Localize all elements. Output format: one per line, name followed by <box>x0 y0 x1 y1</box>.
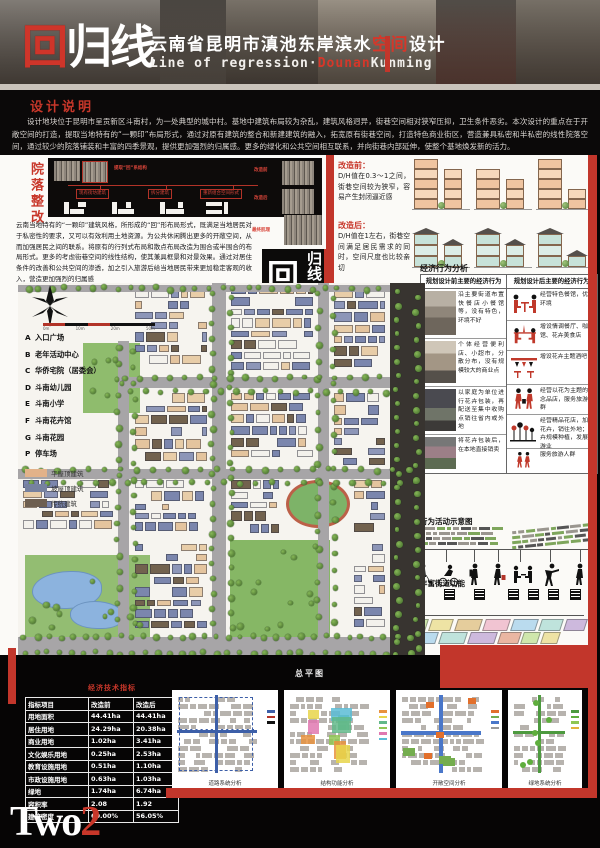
mini-building <box>290 704 299 709</box>
indicator-cell: 教育设施用地 <box>26 760 89 773</box>
ground-line <box>474 267 532 268</box>
plan-building <box>201 345 207 352</box>
tree <box>416 603 421 608</box>
mini-building <box>450 739 454 744</box>
indicator-cell: 用地面积 <box>26 710 89 723</box>
mini-building <box>462 746 468 751</box>
tree <box>227 460 233 466</box>
indicator-cell: 1.92 <box>134 798 179 811</box>
plan-building <box>334 405 346 415</box>
diagram-label-after: 改造后 <box>254 196 268 201</box>
plan-building <box>135 439 150 449</box>
tree <box>227 310 233 316</box>
plan-building <box>272 450 281 457</box>
map-fragment <box>426 532 431 535</box>
tree <box>208 411 215 418</box>
diagram-label-extract: 提取“回”系结构 <box>114 166 147 171</box>
pitched-roof <box>566 250 588 256</box>
plan-building <box>155 312 167 319</box>
economy-after-row: 经营特色餐馆，优化环境 <box>507 289 596 321</box>
tree <box>414 491 420 497</box>
economy-row-text: 沿主要街道布置快餐店小餐馆等，没有特色，环境不好 <box>458 291 504 336</box>
plan-building <box>354 312 368 322</box>
legend-item: E斗南小学 <box>25 399 135 416</box>
economy-row-text: 经营特色餐馆，优化环境 <box>540 291 594 318</box>
street-function-block <box>438 632 467 644</box>
plan-building <box>231 450 249 457</box>
plan-building <box>184 564 192 574</box>
indicator-cell: 44.41ha <box>89 710 134 723</box>
logo-guixian-glyph: 归线 <box>66 20 154 74</box>
tree <box>345 651 351 655</box>
tree <box>330 364 335 369</box>
plan-building <box>371 502 379 510</box>
tree <box>394 513 401 520</box>
diagram-label-split: 拆分建筑 <box>148 189 172 199</box>
tree <box>332 330 338 336</box>
map-fragment <box>565 529 578 533</box>
plan-building <box>372 325 385 332</box>
indicator-cell: 56.05% <box>134 810 179 823</box>
tree <box>132 557 137 562</box>
behavior-title: 行为活动示意图 <box>420 516 473 527</box>
right-red-border <box>588 155 597 798</box>
tree <box>323 650 328 655</box>
tree <box>296 649 303 655</box>
map-fragment <box>545 532 550 536</box>
mini-building <box>455 711 466 716</box>
plan-building <box>376 438 385 445</box>
indicator-cell: 24.29ha <box>89 723 134 736</box>
map-fragment <box>512 540 521 544</box>
diagram-label-existing: 现有街坊建筑 <box>76 189 109 199</box>
mini-legend-swatch <box>491 727 499 730</box>
team-logo-text: Two <box>10 799 80 845</box>
tree <box>310 466 316 472</box>
plan-building <box>69 520 77 529</box>
economy-row-text: 以家庭为单位进行花卉包装，再配送至集中收购点销往省内或外地 <box>458 389 504 432</box>
street-function-block <box>429 619 455 631</box>
map-fragment <box>437 527 446 530</box>
tree <box>210 381 217 388</box>
tree <box>331 296 336 301</box>
tree <box>416 323 422 329</box>
indicator-cell: 文化娱乐用地 <box>26 748 89 761</box>
function-zone-overlay <box>332 717 351 733</box>
tree <box>212 376 217 381</box>
plan-building <box>179 452 194 462</box>
tree <box>301 480 307 486</box>
tree <box>132 589 137 594</box>
plan-building <box>368 336 377 344</box>
tree <box>415 631 421 637</box>
mini-building <box>558 711 566 716</box>
street-function-title: 丰富街道功能 <box>420 578 465 589</box>
mini-building <box>402 697 408 702</box>
tree <box>143 650 148 655</box>
mini-building <box>418 697 426 702</box>
mini-building <box>290 732 295 737</box>
plan-building <box>251 331 271 338</box>
plan-building <box>272 414 285 423</box>
map-fragment <box>518 530 525 534</box>
tree <box>115 617 120 622</box>
plan-building <box>135 332 144 342</box>
title-accent: 空间 <box>372 35 409 55</box>
plan-building <box>287 414 294 423</box>
map-fragment <box>544 542 556 546</box>
plan-building <box>171 345 179 352</box>
mini-building <box>301 704 305 709</box>
open-space-overlay <box>424 753 432 759</box>
tree <box>114 537 119 542</box>
scale-label: 20m <box>111 326 120 331</box>
plan-building <box>372 544 384 551</box>
title-red-tick <box>385 36 390 72</box>
tree <box>53 604 60 611</box>
plan-building <box>286 309 303 315</box>
mini-legend-swatch <box>491 710 499 713</box>
map-fragment <box>478 542 489 545</box>
plan-building <box>186 439 201 449</box>
design-notes-body: 设计地块位于昆明市呈贡新区斗南村，为一处典型的城中村。基地中建筑布局较为杂乱，建… <box>12 116 588 154</box>
plan-building <box>189 522 198 530</box>
mini-building <box>556 760 564 765</box>
tree <box>347 375 353 381</box>
tree <box>311 634 317 640</box>
green-node-overlay <box>535 740 541 746</box>
exercise-icon <box>542 563 564 591</box>
tree <box>408 650 415 655</box>
tree <box>247 285 252 290</box>
map-thumb-before <box>282 161 314 185</box>
plan-building <box>231 511 242 521</box>
map-fragment <box>570 524 581 528</box>
courtyard-body: 云南当地特有的“一颗印”建筑风格，所形成的“回”形布局形式，既满足当地居民对于私… <box>16 220 252 285</box>
analysis-card-caption: 绿地系统分析 <box>508 779 582 787</box>
plan-building <box>164 439 173 449</box>
plan-building <box>135 522 143 530</box>
map-fragment <box>557 536 562 540</box>
plan-building <box>195 491 204 500</box>
street-function-blocks <box>414 632 559 644</box>
plan-building <box>279 426 287 435</box>
map-fragment <box>429 542 436 545</box>
tree <box>83 634 89 640</box>
mini-building <box>520 725 529 730</box>
plan-building <box>258 340 276 348</box>
plan-building <box>135 427 147 436</box>
tree <box>414 533 420 539</box>
map-fragment <box>439 532 450 535</box>
tree <box>358 466 364 472</box>
footprint-shape <box>78 202 86 207</box>
mini-building <box>463 739 474 744</box>
mini-building <box>467 767 471 772</box>
plan-building <box>298 426 307 435</box>
plan-building <box>171 621 182 628</box>
mini-building <box>555 697 560 702</box>
plan-building <box>173 600 189 606</box>
tree <box>395 527 400 532</box>
tree <box>167 651 173 655</box>
boundary-overlay <box>179 697 253 771</box>
plan-building <box>344 428 358 434</box>
connector-line <box>406 615 584 616</box>
analysis-card-caption: 开敞空间分析 <box>396 779 502 787</box>
plan-building <box>354 566 366 573</box>
footprint-shape <box>166 209 184 214</box>
tree <box>251 651 258 655</box>
plan-building <box>278 393 291 400</box>
tree <box>237 623 244 630</box>
street-icon-chip <box>570 589 581 600</box>
master-plan-map: 0m 10m 20m 50m A入口广场B老年活动中心C华侨宅院（居委会）D斗南… <box>18 283 425 655</box>
tree <box>210 621 215 626</box>
analysis-card-roads: 道路系统分析 <box>172 690 278 790</box>
tree <box>227 385 232 390</box>
mini-building <box>359 760 367 765</box>
plan-building <box>269 502 278 508</box>
economy-row-text: 将花卉包装后，在本地直接销卖 <box>458 437 504 471</box>
function-zone-overlay <box>301 735 315 744</box>
plan-building <box>270 426 277 435</box>
plan-building <box>334 301 345 310</box>
after-building-floor <box>414 245 438 256</box>
ground-line <box>536 267 594 268</box>
subtitle-post: Kunming <box>371 56 433 71</box>
map-fragment <box>537 543 543 547</box>
tree <box>209 561 214 566</box>
plan-building <box>355 325 370 332</box>
map-fragment <box>452 537 462 540</box>
shopper-icon <box>490 563 512 591</box>
footprint-shape <box>118 209 134 214</box>
tree <box>395 303 402 310</box>
map-fragment <box>481 532 493 535</box>
mini-legend-swatch <box>267 721 275 724</box>
map-fragment <box>471 537 483 540</box>
analysis-card-green: 绿地系统分析 <box>508 690 582 790</box>
tree <box>43 602 49 608</box>
plan-building <box>255 318 270 327</box>
analysis-card-openspace: 开敞空间分析 <box>396 690 502 790</box>
mini-building <box>467 718 472 723</box>
function-zone-overlay <box>308 710 319 719</box>
plan-building <box>271 403 287 411</box>
before-building-floor <box>506 199 524 209</box>
map-fragment <box>479 527 491 530</box>
tree <box>107 650 113 655</box>
plan-building <box>163 513 176 519</box>
plan-building <box>189 587 202 597</box>
mini-building <box>310 767 316 772</box>
economy-after-row: 经营精品花店，加工花卉，销往外地；花卉规模种植，发展旅游业 <box>507 415 596 449</box>
before-building-floor <box>506 179 524 189</box>
map-fragment <box>557 525 569 529</box>
before-building-floor <box>506 189 524 199</box>
tree <box>332 517 338 523</box>
plan-building <box>334 393 344 402</box>
economy-row-text: 增设情调餐厅、咖啡馆、花卉美食店 <box>540 323 594 348</box>
plan-building <box>135 504 146 510</box>
street-function-block <box>510 619 539 631</box>
economy-col-header-after: 规划设计后主要的经济行为 <box>507 275 596 288</box>
tree <box>315 512 322 519</box>
economy-photo <box>423 341 456 383</box>
tree <box>257 376 263 382</box>
tree <box>316 410 321 415</box>
plan-building <box>347 301 355 310</box>
tree <box>197 374 203 380</box>
plan-building <box>150 564 170 574</box>
tree <box>332 534 339 541</box>
mini-building <box>553 704 563 709</box>
street-function-diagram <box>400 589 590 645</box>
plan-building <box>231 331 249 338</box>
plan-building <box>263 492 273 498</box>
plan-building <box>283 352 290 359</box>
indicator-row: 文化娱乐用地0.25ha2.53ha <box>26 748 179 761</box>
street-tree <box>438 202 445 209</box>
before-building-floor <box>476 199 500 209</box>
tree <box>331 381 336 386</box>
mini-legend-swatch <box>379 738 387 741</box>
plan-building <box>358 301 378 310</box>
tree <box>49 625 54 630</box>
plan-building <box>380 301 385 310</box>
indicator-cell: 0.51ha <box>89 760 134 773</box>
connector-line <box>520 549 521 562</box>
mini-building <box>348 739 357 744</box>
ground-line <box>536 209 594 210</box>
analysis-card-caption: 结构功能分析 <box>284 779 390 787</box>
mini-legend-swatch <box>571 721 579 724</box>
ground-line <box>412 209 470 210</box>
economy-before-row: 沿主要街道布置快餐店小餐馆等，没有特色，环境不好 <box>421 289 506 339</box>
tree <box>415 295 420 300</box>
mini-building <box>290 753 300 758</box>
plan-building <box>251 450 270 457</box>
tree <box>317 480 323 486</box>
map-fragment <box>438 542 446 545</box>
footprint-shape <box>206 202 222 206</box>
mini-building <box>409 704 417 709</box>
map-fragment <box>464 537 470 540</box>
tree <box>93 649 98 654</box>
before-building-floor <box>476 189 500 199</box>
poster-root: 回归线 云南省昆明市滇池东岸滨水空间设计 Line of regression·… <box>0 0 600 848</box>
economy-photo <box>423 291 456 335</box>
plan-building <box>169 322 177 329</box>
tree <box>413 393 419 399</box>
tree <box>228 550 235 557</box>
plan-building <box>277 438 297 447</box>
tree <box>394 639 400 645</box>
street-icon-chip <box>474 589 485 600</box>
plan-building <box>147 345 157 352</box>
street-function-block <box>538 619 564 631</box>
tree <box>396 471 402 477</box>
tree <box>396 373 401 378</box>
tree <box>413 561 420 568</box>
plan-building <box>256 414 270 423</box>
mini-building <box>415 718 421 723</box>
economy-before-row: 个体经营便利店、小超市，分散分布，没有规模较大的商业点 <box>421 339 506 387</box>
tree <box>364 287 371 294</box>
after-building-floor <box>538 234 562 245</box>
street-icon-chip <box>528 589 539 600</box>
diagram-connector <box>68 185 258 186</box>
plan-building <box>367 393 379 402</box>
tree <box>315 393 320 398</box>
mini-building <box>290 760 296 765</box>
tree <box>153 634 160 641</box>
diagram-label-recombine: 重新组合空间形式 <box>200 189 242 199</box>
tree <box>349 480 356 487</box>
economy-table-header: 规划设计前主要的经济行为 规划设计后主要的经济行为 <box>421 275 597 289</box>
map-fragment <box>525 544 536 548</box>
before-building-floor <box>538 159 562 169</box>
tree <box>394 359 400 365</box>
plan-building <box>175 522 186 530</box>
mini-building <box>558 746 566 751</box>
greenway-overlay <box>538 695 541 773</box>
header-banner: 回归线 云南省昆明市滇池东岸滨水空间设计 Line of regression·… <box>0 0 600 90</box>
plan-building <box>296 414 306 423</box>
indicator-row: 居住用地24.29ha20.38ha <box>26 723 179 736</box>
mini-building <box>290 739 294 744</box>
tree <box>416 645 423 652</box>
main-panel: 院落整改 提取“回”系结构 现有街坊建筑 拆分建筑 重新组合空间形式 <box>0 155 597 655</box>
before-building-floor <box>538 189 562 199</box>
plan-building <box>175 439 184 449</box>
legend-item: C华侨宅院（居委会） <box>25 366 135 383</box>
plan-building <box>292 362 310 370</box>
plan-building <box>178 513 186 519</box>
tree <box>413 407 420 414</box>
plan-building <box>172 564 182 574</box>
map-fragment <box>557 540 569 544</box>
tree <box>224 650 230 655</box>
mini-building <box>476 739 485 744</box>
tree <box>90 579 95 584</box>
plan-building <box>354 575 362 582</box>
tree <box>316 342 323 349</box>
tree <box>278 389 283 394</box>
tree <box>205 480 210 485</box>
after-building-floor <box>506 245 524 256</box>
tree <box>370 651 377 655</box>
legend-swatch-label: 坡屋顶建筑 <box>51 483 84 493</box>
indicator-row: 绿地1.74ha6.74ha <box>26 785 179 798</box>
map-fragment <box>490 542 498 545</box>
tree <box>228 325 233 330</box>
tree <box>228 610 234 616</box>
tree <box>210 501 216 507</box>
tree <box>309 601 314 606</box>
tree <box>90 285 96 291</box>
tree <box>117 652 123 655</box>
tree <box>359 651 365 655</box>
legend-item: A入口广场 <box>25 333 135 350</box>
tourists-icon <box>509 451 539 469</box>
plan-building <box>166 554 178 561</box>
tree <box>221 479 227 485</box>
plan-building <box>188 406 200 412</box>
tree <box>20 635 25 640</box>
economy-after-row: 增设情调餐厅、咖啡馆、花卉美食店 <box>507 321 596 351</box>
